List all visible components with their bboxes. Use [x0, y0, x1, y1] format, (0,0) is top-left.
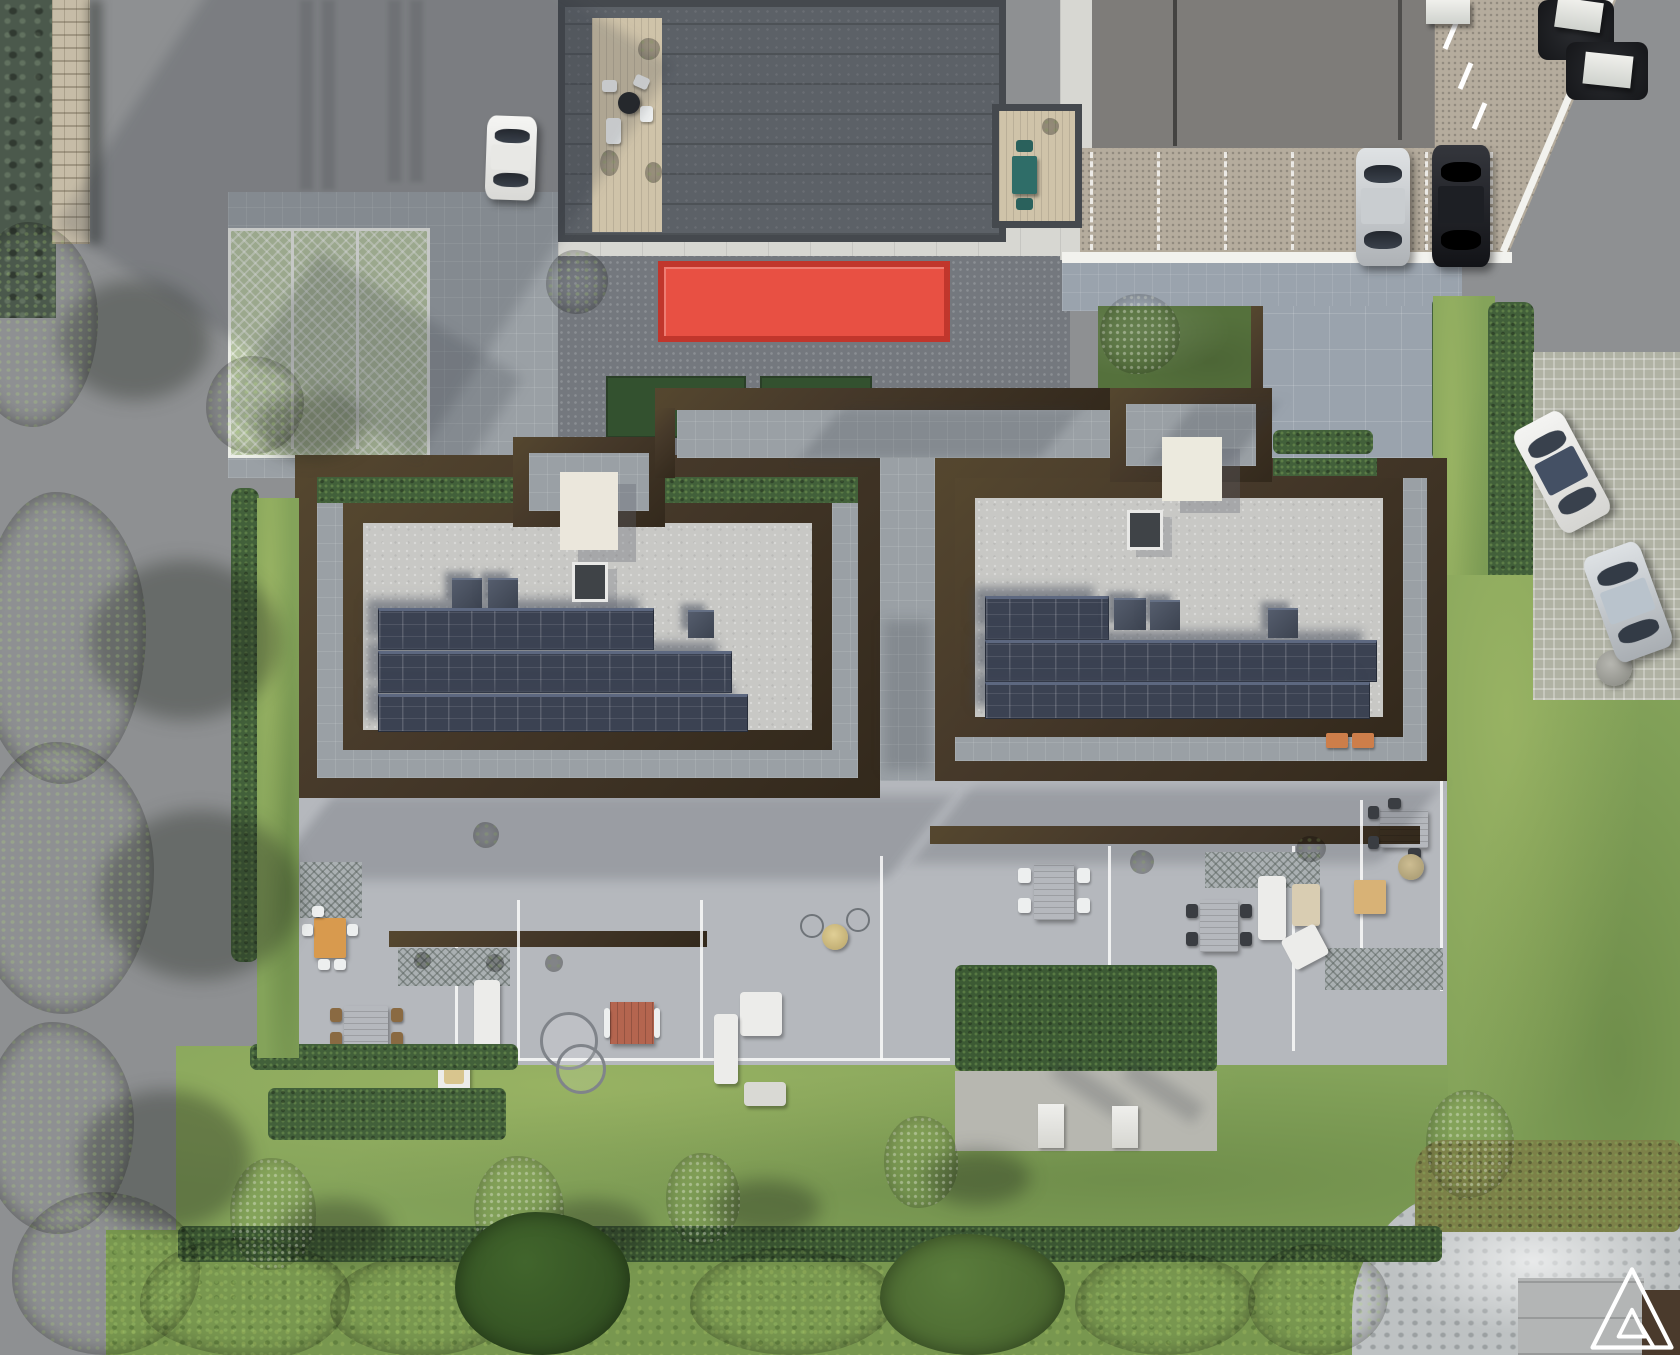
- picnic-table: [604, 996, 660, 1050]
- skylight-left: [560, 472, 618, 550]
- white-car-north: [485, 115, 538, 201]
- chair: [1186, 904, 1198, 918]
- court-shadow: [798, 408, 1082, 460]
- chair: [302, 924, 313, 936]
- yard-joint: [1398, 0, 1402, 140]
- sun-lounger-orange: [1352, 733, 1374, 748]
- rattan-chair: [1398, 854, 1424, 880]
- side-table: [1354, 880, 1386, 914]
- chair: [1240, 904, 1252, 918]
- table: [1380, 810, 1428, 848]
- north-building-yard: [1090, 0, 1438, 148]
- parapet-walkway-east2: [1403, 478, 1427, 761]
- solar-array-row: [378, 694, 748, 732]
- north-building-terrace: [992, 104, 1082, 228]
- silver-car-northeast: [1356, 148, 1410, 266]
- bench: [604, 1008, 610, 1038]
- terrace-table-teal: [1012, 156, 1037, 194]
- dining-set: [302, 906, 358, 970]
- chair: [1368, 806, 1379, 819]
- garden-tree: [1426, 1090, 1514, 1198]
- chair: [1018, 868, 1031, 883]
- chair: [1368, 836, 1379, 849]
- garden-hedge-block: [955, 965, 1217, 1071]
- parapet-walkway-west: [317, 503, 343, 778]
- car-roof: [1361, 188, 1404, 223]
- chair: [312, 906, 324, 917]
- car-windshield: [1441, 162, 1482, 182]
- logo-watermark: [1590, 1266, 1674, 1350]
- chair: [1186, 932, 1198, 946]
- chair: [318, 959, 330, 970]
- chair: [1077, 868, 1090, 883]
- balcony-fascia-left: [389, 931, 707, 947]
- table-round: [822, 924, 848, 950]
- west-lawn-strip: [257, 498, 299, 1058]
- roof-vent-cube: [1114, 598, 1146, 630]
- car-windshield: [494, 129, 529, 144]
- olive-tree: [1100, 294, 1180, 374]
- planter-box: [744, 1082, 786, 1106]
- chair: [391, 1008, 403, 1022]
- solar-array-row: [985, 682, 1370, 719]
- terrace-shadow: [267, 795, 953, 880]
- logo-inner-triangle: [1619, 1310, 1646, 1337]
- car-rear-window: [493, 172, 528, 187]
- stall-line: [1157, 152, 1160, 250]
- dining-set: [1186, 888, 1252, 964]
- outdoor-sofa: [1258, 876, 1286, 940]
- terrace-divider: [880, 856, 883, 1060]
- street-tree: [0, 222, 98, 427]
- car-rear-window: [1441, 230, 1482, 250]
- street-tree: [0, 742, 154, 1014]
- solar-array-row: [378, 608, 654, 650]
- wire-chair: [846, 908, 870, 932]
- car-rear-window: [1364, 231, 1402, 250]
- solar-array-row: [985, 640, 1377, 682]
- roof-vent-cube: [1268, 608, 1298, 638]
- stall-line: [1291, 152, 1294, 250]
- aerial-site-render: [0, 0, 1680, 1355]
- car-roof: [491, 144, 532, 171]
- roof-vent-cube: [452, 578, 482, 608]
- garden-tree: [884, 1116, 958, 1208]
- dining-set: [1368, 802, 1438, 856]
- chair: [1077, 898, 1090, 913]
- chair: [1240, 932, 1252, 946]
- table: [1034, 864, 1074, 920]
- garden-hedge-row: [268, 1088, 506, 1140]
- table: [1200, 900, 1238, 952]
- pedestal: [1112, 1106, 1138, 1148]
- chair: [347, 924, 358, 936]
- roof-vent-cube: [688, 610, 714, 638]
- dining-set: [1018, 848, 1090, 936]
- stall-line: [1224, 152, 1227, 250]
- center-parapet-return: [655, 408, 675, 478]
- parapet-planting: [1273, 458, 1377, 476]
- wire-chair: [800, 914, 824, 938]
- solar-array-row: [985, 596, 1109, 640]
- black-car-northeast: [1432, 145, 1490, 267]
- center-north-parapet: [655, 388, 1110, 410]
- connector-shadow: [884, 620, 930, 770]
- solar-array-row: [378, 651, 732, 693]
- car-windshield: [1364, 165, 1402, 184]
- hvac-cap: [1582, 52, 1633, 89]
- bistro-set: [800, 906, 868, 966]
- pedestal: [1038, 1104, 1064, 1148]
- chair: [1018, 898, 1031, 913]
- chair: [330, 1008, 342, 1022]
- roof-vent-cube: [1150, 600, 1180, 630]
- yard-joint: [1173, 0, 1177, 146]
- roof-vent-cube: [488, 578, 518, 608]
- parapet-walkway-south: [317, 750, 858, 778]
- terrace-divider: [517, 900, 520, 1060]
- chair: [1388, 798, 1401, 809]
- bench: [654, 1008, 660, 1038]
- table: [314, 918, 346, 958]
- sideboard: [740, 992, 782, 1036]
- parapet-walkway-east: [832, 503, 858, 778]
- stall-line: [1090, 152, 1093, 250]
- red-canopy: [658, 261, 950, 342]
- sun-lounger: [714, 1014, 738, 1084]
- terrace-divider: [700, 900, 703, 1060]
- roof-hatch-left: [572, 562, 608, 602]
- sun-lounger-orange: [1326, 733, 1348, 748]
- coffee-table: [1292, 884, 1320, 926]
- car-roof: [1438, 186, 1484, 223]
- garden-tree: [666, 1153, 740, 1245]
- terrace-chair-teal: [1016, 140, 1033, 152]
- stall-line: [1490, 152, 1493, 250]
- table: [610, 1002, 654, 1044]
- courtyard-plants: [1273, 430, 1373, 454]
- hvac-cap: [1426, 0, 1470, 24]
- stall-line: [1425, 152, 1428, 250]
- skylight-right: [1162, 437, 1222, 501]
- balcony-fascia-right: [930, 826, 1420, 844]
- street-tree: [0, 492, 146, 784]
- roof-hatch-right: [1127, 510, 1163, 550]
- hanging-chair: [556, 1044, 606, 1094]
- terrace-divider: [1360, 800, 1363, 950]
- chair: [334, 959, 346, 970]
- terrace-chair-teal: [1016, 198, 1033, 210]
- mesh-planter: [1325, 948, 1443, 990]
